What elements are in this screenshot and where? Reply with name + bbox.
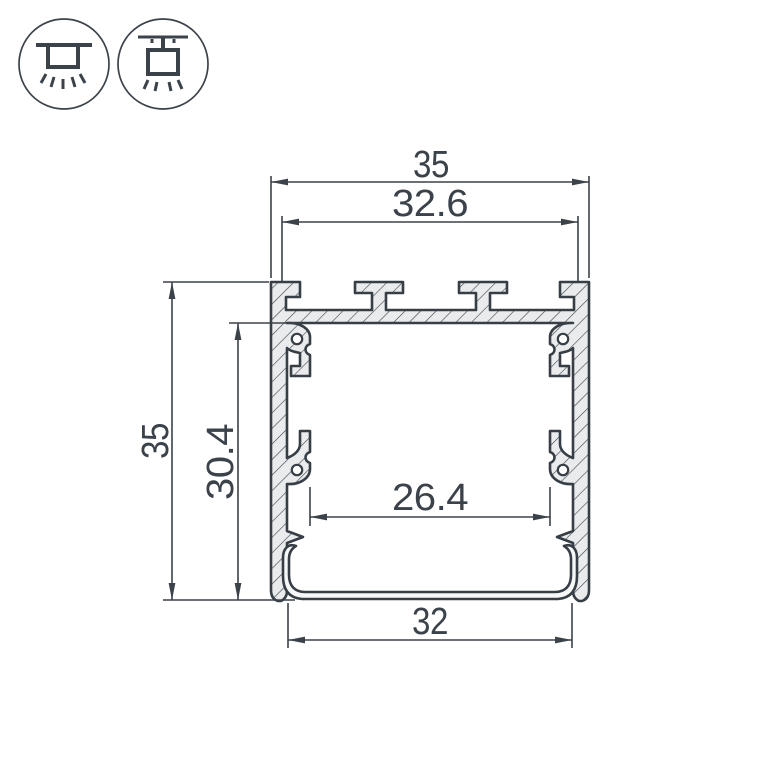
- technical-drawing-page: 35 32.6 35 30.4 26.4: [0, 0, 767, 767]
- dimension-top-inner-width: 32.6: [282, 183, 578, 281]
- extrusion-section: [271, 282, 589, 601]
- dimension-value-inner-height: 30.4: [200, 424, 242, 500]
- dimension-value-inner-width: 26.4: [392, 477, 468, 519]
- dimension-value-bottom-width: 32: [412, 601, 448, 643]
- screw-ports: [292, 334, 568, 475]
- icon-border-circle: [118, 19, 208, 109]
- dimension-value-overall-height: 35: [135, 423, 177, 459]
- surface-mount-icon: [19, 19, 109, 109]
- dimension-bottom-width: 32: [288, 601, 572, 648]
- dimension-value-top-inner-width: 32.6: [392, 183, 468, 225]
- icon-border-circle: [19, 19, 109, 109]
- dimension-annotations: 35 32.6 35 30.4 26.4: [135, 144, 589, 648]
- dimension-value-top-width: 35: [413, 144, 449, 186]
- dimension-inner-width: 26.4: [310, 477, 550, 526]
- pendant-mount-icon: [118, 19, 208, 109]
- diffuser-lens: [283, 545, 577, 599]
- profile-drawing-svg: 35 32.6 35 30.4 26.4: [0, 0, 767, 767]
- profile-body: [271, 282, 589, 601]
